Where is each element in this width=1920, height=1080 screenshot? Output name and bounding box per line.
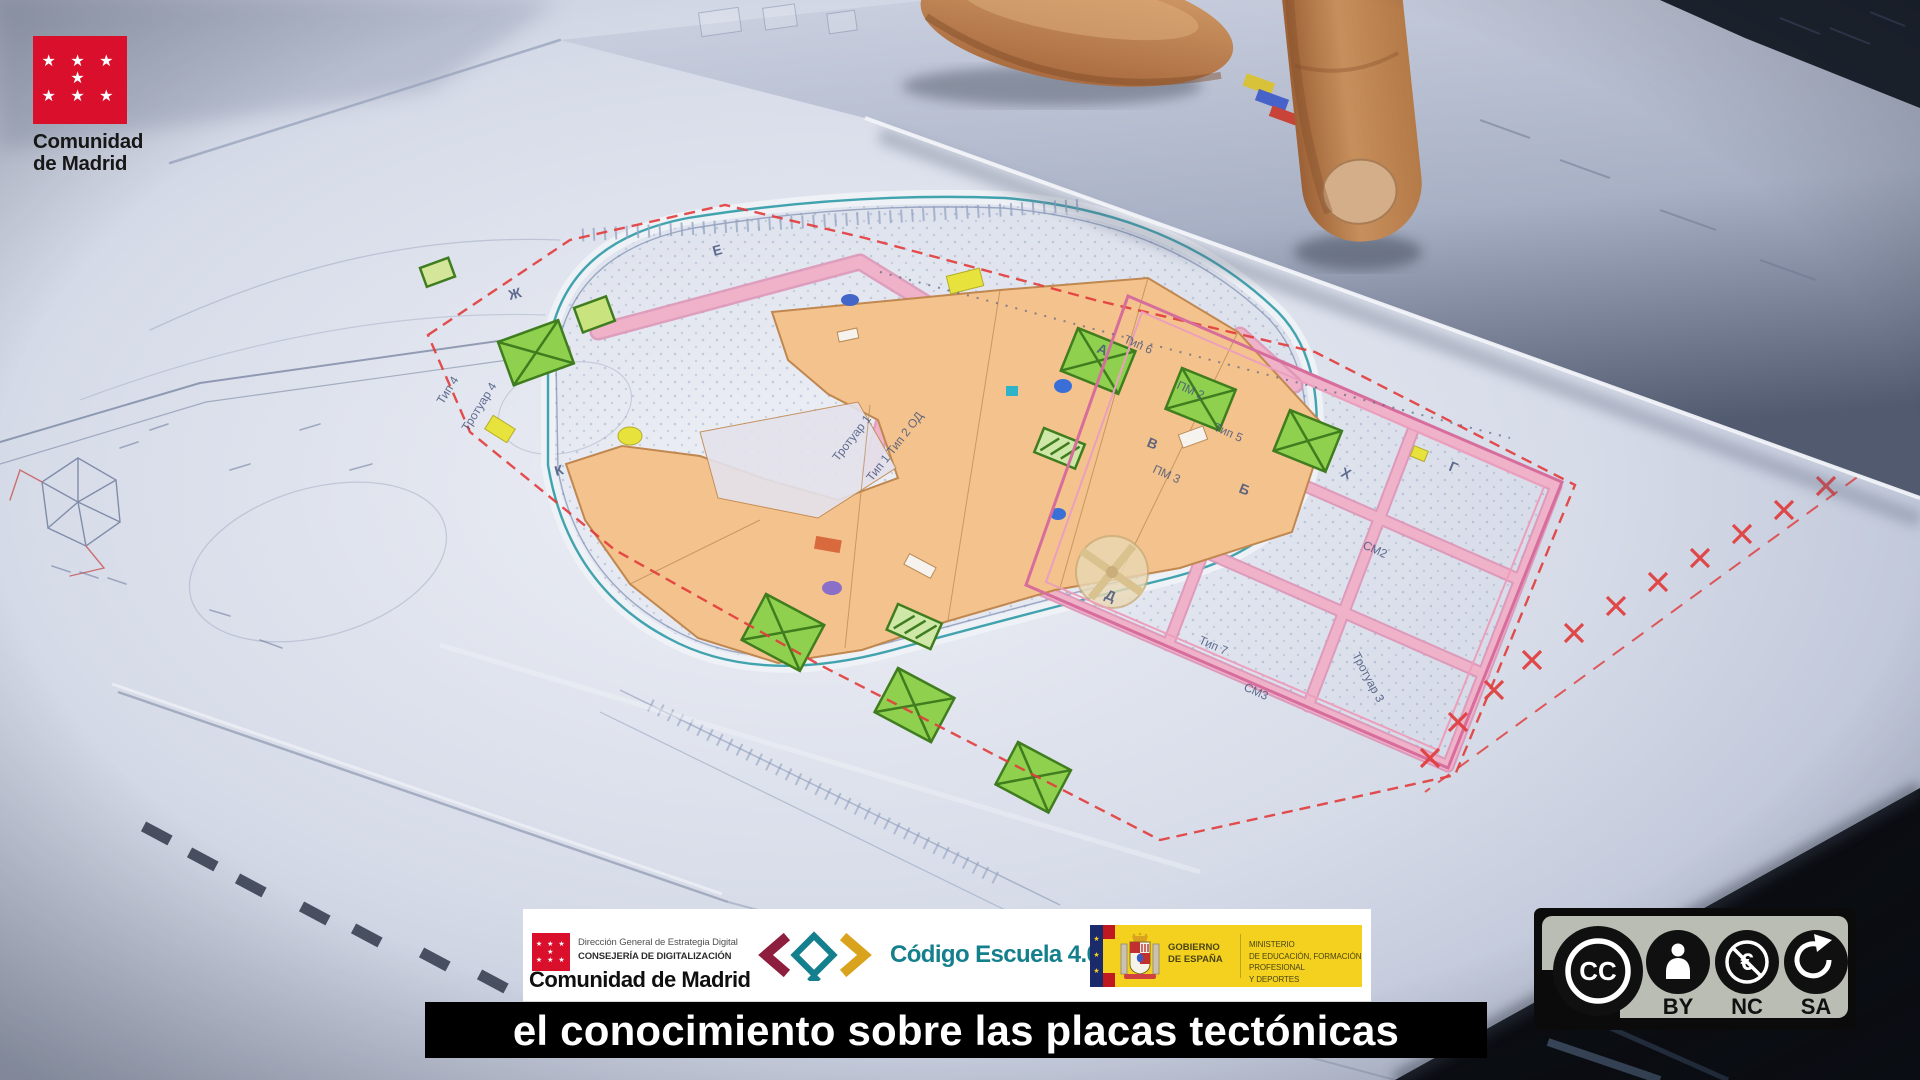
sponsor-banner: ★ ★ ★ ★ ★ ★ ★ Dirección General de Estra… — [523, 909, 1371, 1002]
video-frame: Тротуар 1 Тип 1 Тип 2 ОД Тип 4 Тротуар 4… — [0, 0, 1920, 1080]
logo-divider — [1240, 934, 1241, 978]
madrid-watermark: ★ ★ ★ ★ ★ ★ ★ Comunidad de Madrid — [33, 36, 143, 174]
flag-stars-row2: ★ ★ ★ — [33, 88, 127, 105]
svg-text:BY: BY — [1663, 994, 1694, 1019]
eu-flag-strip: ★ ★ ★ — [1090, 925, 1103, 987]
gobierno-text: GOBIERNO DE ESPAÑA — [1168, 942, 1223, 966]
madrid-org-name: Comunidad de Madrid — [529, 967, 751, 993]
subtitle-caption: el conocimiento sobre las placas tectóni… — [425, 1002, 1487, 1058]
codigo-escuela-logo: Código Escuela 4.0 — [752, 928, 1099, 982]
svg-text:SA: SA — [1801, 994, 1832, 1019]
cc-license-badge: CC € BY NC SA — [1534, 908, 1856, 1030]
svg-text:CC: CC — [1579, 956, 1617, 986]
ministry-text: MINISTERIO DE EDUCACIÓN, FORMACIÓN PROFE… — [1249, 939, 1362, 985]
cc-labels: BY NC SA — [1663, 994, 1832, 1019]
spain-flag-strip — [1103, 925, 1115, 987]
codigo-escuela-icon — [752, 929, 878, 981]
gobierno-espana-logo: ★ ★ ★ GOBIERNO DE ESPAÑA — [1090, 925, 1362, 987]
madrid-flag-logo-small: ★ ★ ★ ★ ★ ★ ★ — [532, 933, 570, 971]
madrid-flag-logo: ★ ★ ★ ★ ★ ★ ★ — [33, 36, 127, 124]
watermark-name: Comunidad de Madrid — [33, 131, 143, 174]
codigo-escuela-name: Código Escuela 4.0 — [890, 941, 1099, 969]
cc-icon: CC — [1553, 926, 1643, 1016]
sa-icon — [1784, 930, 1848, 994]
nc-icon: € — [1715, 930, 1779, 994]
by-icon — [1646, 930, 1710, 994]
flag-stars-row1: ★ ★ ★ ★ — [33, 36, 127, 87]
madrid-department: Dirección General de Estrategia Digital … — [578, 936, 738, 963]
spain-coat-of-arms — [1120, 930, 1160, 982]
svg-text:NC: NC — [1731, 994, 1763, 1019]
